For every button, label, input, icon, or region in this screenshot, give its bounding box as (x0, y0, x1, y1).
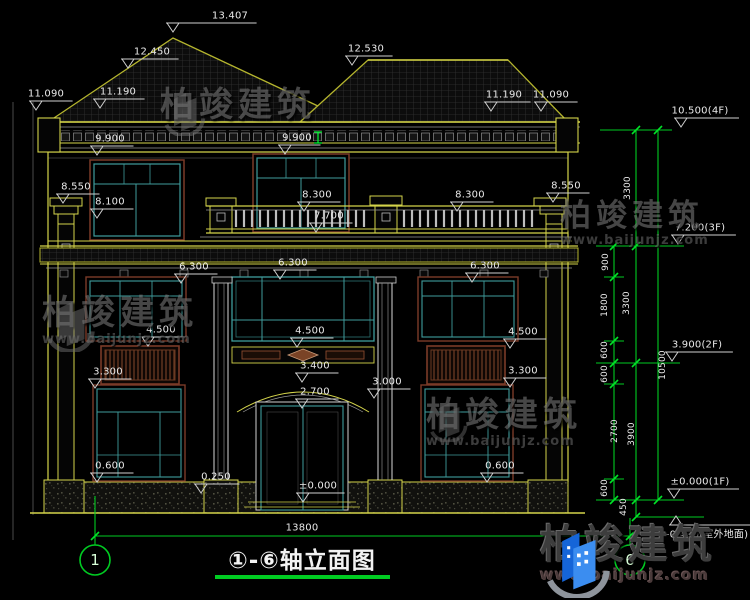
elevation-label: 3.400 (300, 361, 330, 372)
elevation-label: 13800 (286, 523, 319, 534)
dimension-text: 10500 (658, 350, 668, 380)
elevation-label: 12.450 (134, 47, 170, 58)
entrance-door (244, 402, 360, 510)
elevation-label: 4.500 (146, 325, 176, 336)
elevation-label: 6.300 (470, 261, 500, 272)
elevation-label: ±0.000(1F) (671, 477, 730, 488)
axis-number-1: 1 (90, 551, 100, 569)
elevation-label: 8.300 (302, 190, 332, 201)
elevation-label: -0.450(室外地面) (666, 526, 748, 541)
drawing-title: ①-⑥轴立面图 (228, 541, 376, 575)
elevation-label: 4.500 (508, 327, 538, 338)
elevation-label: 3.300 (508, 366, 538, 377)
elevation-label: 8.550 (61, 182, 91, 193)
elevation-label: 9.900 (95, 134, 125, 145)
elevation-label: 10.500(4F) (672, 106, 729, 117)
elevation-label: 6.300 (278, 258, 308, 269)
dimension-text: 600 (600, 479, 610, 497)
dimension-text: 450 (619, 498, 629, 516)
elevation-label: 11.190 (486, 90, 522, 101)
elevation-label: 0.600 (485, 461, 515, 472)
axis-number-6: 6 (625, 551, 635, 569)
elevation-label: 11.090 (533, 90, 569, 101)
right-window-stack (418, 277, 518, 481)
dimension-text: 600 (600, 365, 610, 383)
elevation-label: 6.300 (179, 262, 209, 273)
elevation-label: 8.100 (95, 197, 125, 208)
elevation-label: 9.900 (282, 133, 312, 144)
dimension-text: 600 (600, 341, 610, 359)
dimension-text: 3300 (622, 291, 632, 315)
elevation-label: 11.090 (28, 89, 64, 100)
elevation-label: ±0.000 (299, 481, 337, 492)
elevation-label: 8.550 (551, 181, 581, 192)
elevation-label: 12.530 (348, 44, 384, 55)
elevation-sheet: 柏竣建筑 柏竣建筑 www.baijunjz.com 柏竣建筑 www.baij… (0, 0, 750, 600)
elevation-label: 2.700 (300, 387, 330, 398)
dimension-text: 3900 (627, 422, 637, 446)
elevation-label: 3.900(2F) (672, 340, 722, 351)
elevation-label: 3.000 (372, 377, 402, 388)
elevation-label: 0.250 (201, 472, 231, 483)
elevation-label: 4.500 (295, 326, 325, 337)
dimension-text: 3300 (623, 176, 633, 200)
elevation-label: 7.200(3F) (675, 223, 725, 234)
elevation-label: 11.190 (100, 87, 136, 98)
dimension-text: 1800 (600, 293, 610, 317)
elevation-label: 7.700 (314, 211, 344, 222)
elevation-label: 13.407 (212, 11, 248, 22)
elevation-label: 3.300 (93, 367, 123, 378)
dimension-text: 2700 (610, 419, 620, 443)
elevation-label: 8.300 (455, 190, 485, 201)
elevation-label: 0.600 (95, 461, 125, 472)
dimension-text: 900 (601, 253, 611, 271)
